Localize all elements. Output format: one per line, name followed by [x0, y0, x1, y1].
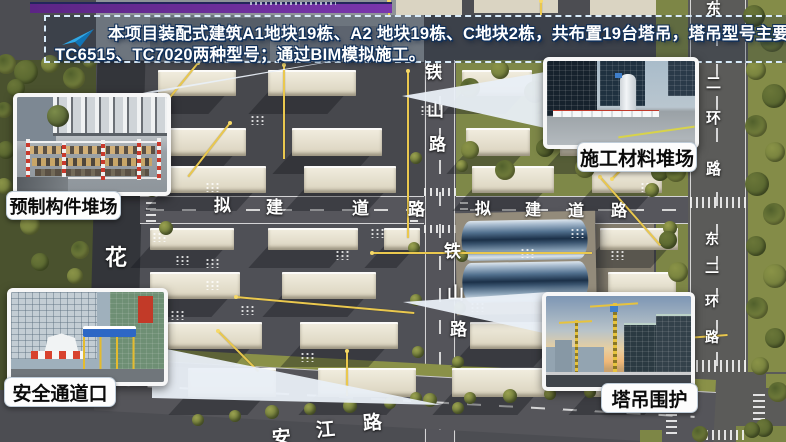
- canopy-posts: [83, 337, 137, 370]
- cement-silo: [620, 74, 636, 109]
- inset-image-safety-gate: [11, 292, 164, 382]
- inset-crane-enclosure: [542, 292, 695, 391]
- tower-crane-mast: [575, 320, 578, 373]
- callout-label-crane-enclosure: 塔吊围护: [601, 383, 698, 413]
- site-fence: [553, 110, 660, 118]
- material-rack: [32, 158, 152, 166]
- machinery: [615, 73, 622, 78]
- crane-cab: [610, 306, 618, 312]
- tree: [47, 105, 69, 127]
- inset-material-yard: [543, 57, 699, 149]
- inset-image-crane-enclosure: [546, 296, 691, 387]
- highrise-under-construction: [668, 61, 695, 96]
- striped-post: [157, 138, 161, 180]
- inset-precast-yard: [13, 93, 171, 196]
- callout-pointer: [402, 72, 545, 128]
- material-rack: [35, 169, 149, 176]
- tower-crane-mast: [613, 303, 617, 376]
- striped-post: [101, 140, 105, 180]
- callout-pointer: [152, 346, 442, 405]
- callout-pointer: [403, 292, 548, 334]
- bim-site-layout-slide: 铁山路铁山路东二环路东二环路拟建道路拟建道路安江路花 本项目装配式建筑A1地块1…: [0, 0, 786, 442]
- highrise-under-construction: [547, 61, 597, 116]
- striped-barrier: [31, 351, 83, 359]
- inset-safety-gate: [7, 288, 168, 386]
- striped-post: [137, 139, 141, 180]
- construction-hoist: [138, 296, 153, 323]
- inset-image-material-yard: [547, 61, 695, 145]
- project-info-banner: 本项目装配式建筑A1地块19栋、A2 地块19栋、C地块2栋，共布置19台塔吊，…: [44, 15, 786, 63]
- bar-tick-marks: [250, 2, 336, 5]
- striped-post: [62, 141, 66, 179]
- callout-label-material-yard: 施工材料堆场: [577, 142, 697, 172]
- callout-label-safety-gate: 安全通道口: [4, 377, 116, 407]
- colonnade-building: [53, 97, 167, 136]
- access-road: [17, 177, 68, 192]
- city-silhouette: [555, 340, 572, 375]
- banner-text-line2: TC6515、TC7020两种型号；通过BIM模拟施工。: [55, 41, 426, 65]
- callout-label-precast-yard: 预制构件堆场: [6, 191, 121, 220]
- safety-canopy-roof: [83, 326, 137, 337]
- top-purple-bar: [30, 2, 392, 13]
- inset-image-precast-yard: [17, 97, 167, 192]
- striped-post: [26, 139, 30, 179]
